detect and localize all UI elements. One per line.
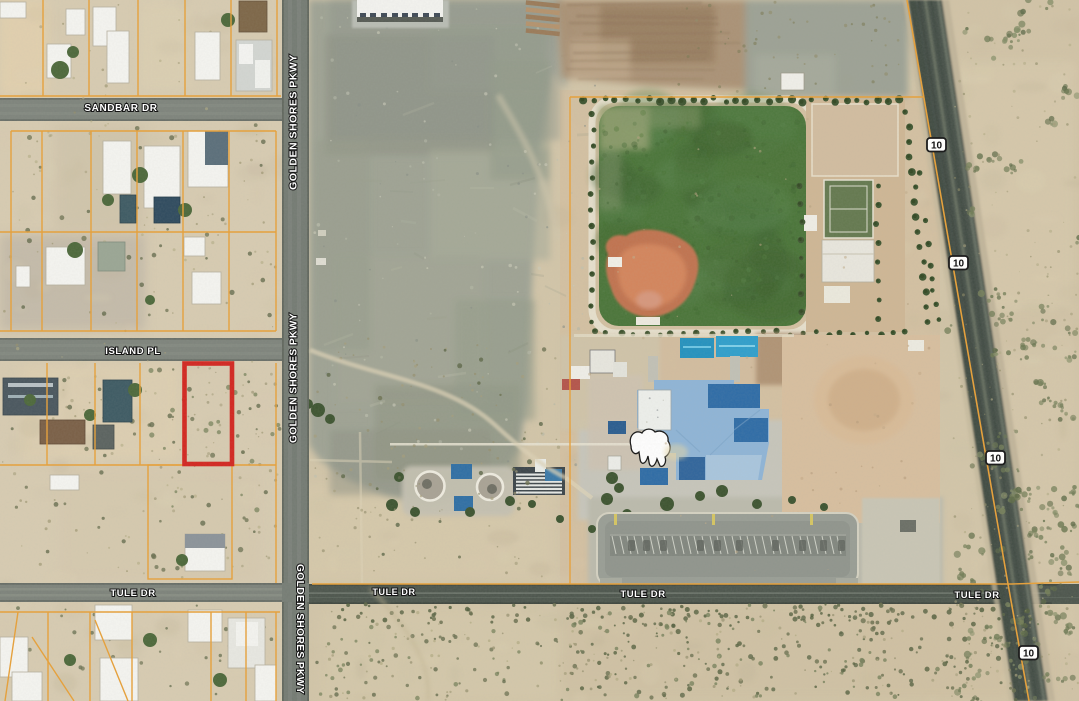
- svg-text:10: 10: [931, 141, 943, 152]
- svg-text:10: 10: [953, 259, 965, 270]
- svg-text:TULE DR: TULE DR: [110, 588, 155, 599]
- svg-text:ISLAND PL: ISLAND PL: [105, 346, 161, 357]
- svg-text:TULE DR: TULE DR: [372, 587, 415, 597]
- svg-text:GOLDEN SHORES PKWY: GOLDEN SHORES PKWY: [294, 564, 305, 694]
- svg-text:10: 10: [990, 454, 1002, 465]
- svg-text:TULE DR: TULE DR: [954, 590, 999, 601]
- svg-text:TULE DR: TULE DR: [620, 589, 665, 600]
- svg-text:GOLDEN SHORES PKWY: GOLDEN SHORES PKWY: [288, 54, 300, 190]
- svg-text:10: 10: [1023, 649, 1035, 660]
- svg-text:SANDBAR DR: SANDBAR DR: [84, 103, 157, 114]
- svg-text:GOLDEN SHORES PKWY: GOLDEN SHORES PKWY: [289, 313, 300, 443]
